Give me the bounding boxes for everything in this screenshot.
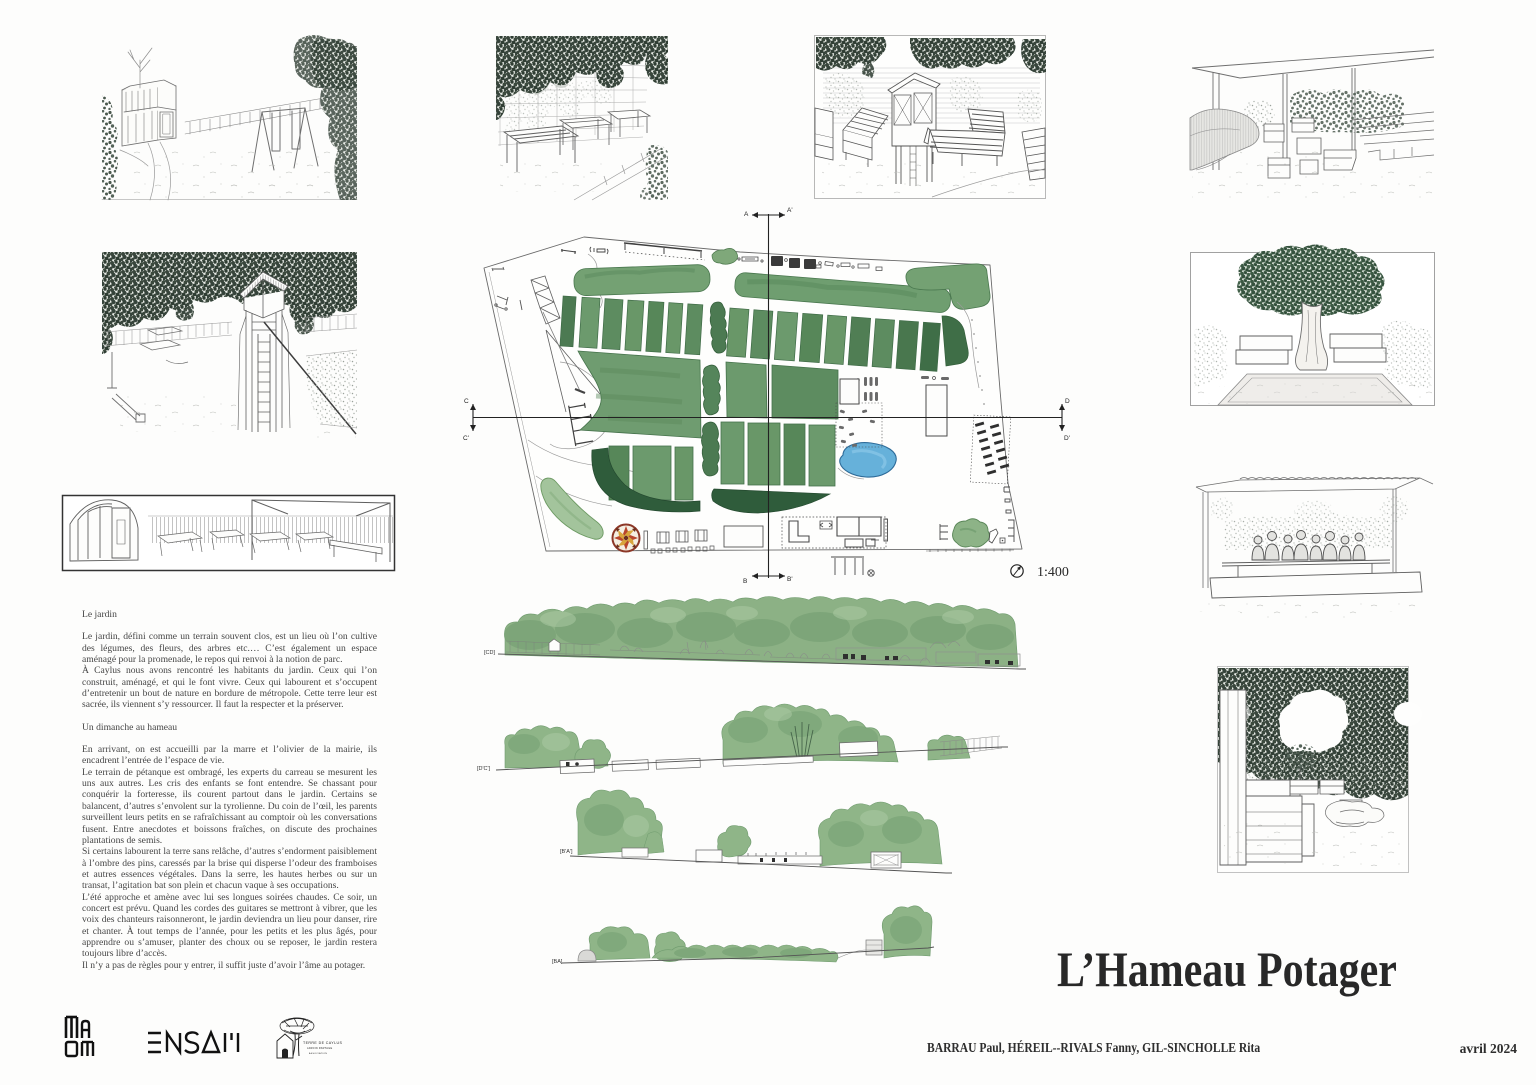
svg-text:A': A' — [787, 207, 793, 214]
svg-text:[D'C']: [D'C'] — [477, 766, 491, 772]
svg-text:B: B — [743, 578, 747, 585]
svg-text:JARDIN PARTAGE: JARDIN PARTAGE — [307, 1047, 332, 1050]
svg-text:1:400: 1:400 — [1037, 565, 1069, 580]
svg-text:[CD]: [CD] — [484, 650, 495, 656]
svg-text:B': B' — [787, 576, 793, 583]
svg-text:A: A — [744, 211, 749, 218]
svg-text:[BA]: [BA] — [552, 959, 563, 965]
svg-text:TERRE DE CAYLUS: TERRE DE CAYLUS — [303, 1041, 342, 1045]
svg-text:D: D — [1065, 398, 1070, 405]
svg-text:C': C' — [463, 435, 469, 442]
svg-text:C: C — [464, 398, 469, 405]
svg-text:D': D' — [1064, 435, 1070, 442]
svg-text:[B'A']: [B'A'] — [560, 849, 573, 855]
svg-text:ASSOCIATION: ASSOCIATION — [309, 1052, 327, 1055]
